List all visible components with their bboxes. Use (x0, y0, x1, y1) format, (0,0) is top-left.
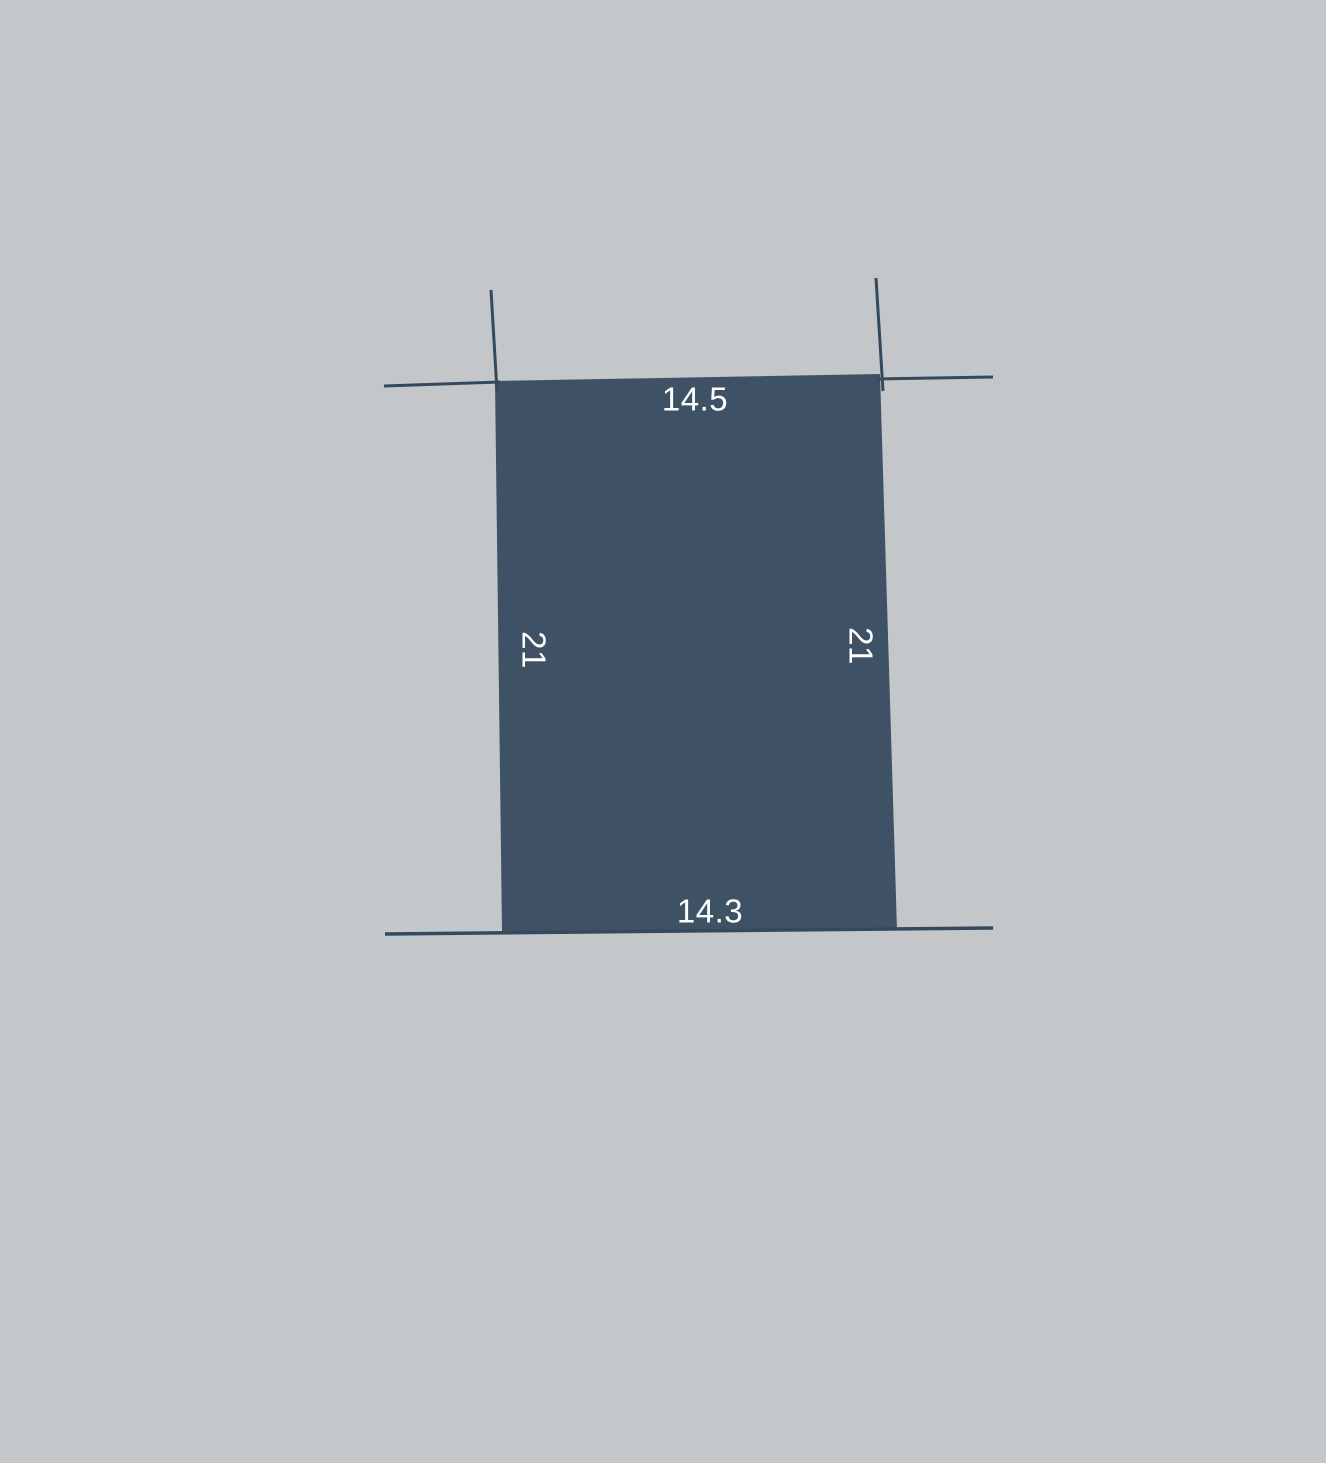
parcel-diagram: 14.514.32121 (0, 0, 1326, 1463)
top-right-horizontal-tick (877, 377, 993, 379)
parcel-shape (495, 374, 897, 932)
top-left-vertical-tick (491, 290, 497, 391)
parcel-diagram-svg (0, 0, 1326, 1463)
top-left-horizontal-tick (384, 382, 500, 386)
